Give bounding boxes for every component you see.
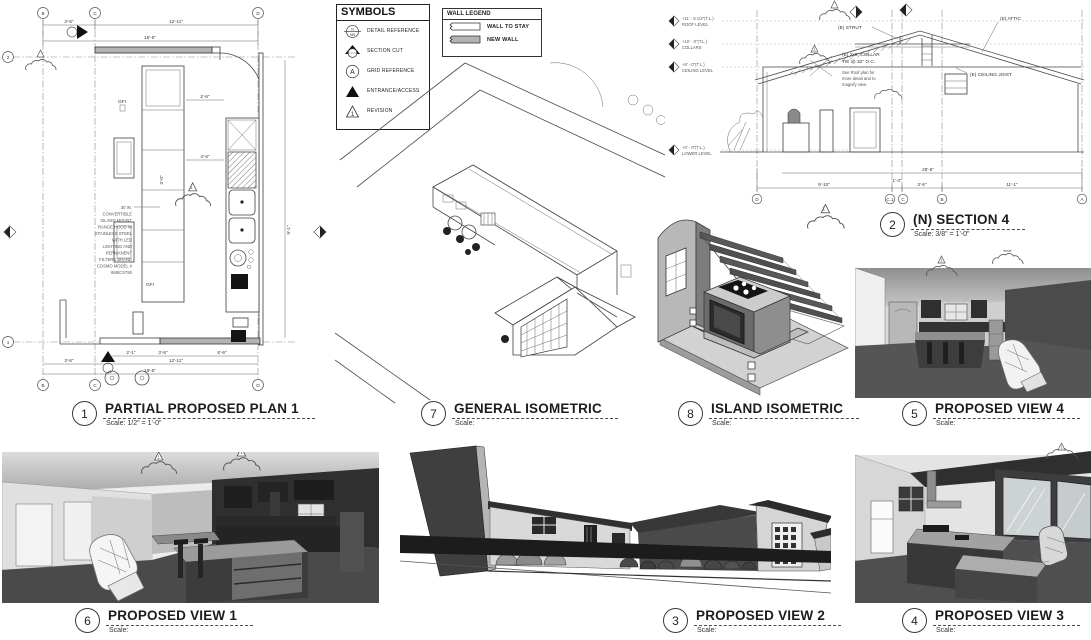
svg-text:2: 2 bbox=[7, 55, 10, 60]
view-number-bubble: 4 bbox=[902, 608, 927, 633]
symbols-legend-title: SYMBOLS bbox=[337, 5, 429, 21]
view-number-bubble: 2 bbox=[880, 212, 905, 237]
svg-text:B: B bbox=[940, 197, 943, 202]
svg-text:(E) CEILING JOIST: (E) CEILING JOIST bbox=[970, 72, 1012, 78]
view-number-bubble: 5 bbox=[902, 401, 927, 426]
small-window bbox=[612, 533, 625, 544]
svg-text:9'-10": 9'-10" bbox=[818, 182, 830, 187]
svg-text:3'-6": 3'-6" bbox=[917, 182, 927, 187]
svg-text:2'-1": 2'-1" bbox=[126, 350, 136, 355]
view-scale-text: Scale: bbox=[936, 627, 1080, 634]
property-lines bbox=[335, 63, 665, 403]
svg-text:(E) ATTIC: (E) ATTIC bbox=[1000, 16, 1021, 22]
svg-text:12'-11": 12'-11" bbox=[169, 19, 183, 24]
svg-text:B: B bbox=[41, 11, 44, 16]
svg-text:3'-6": 3'-6" bbox=[64, 19, 74, 24]
view-number-bubble: 7 bbox=[421, 401, 446, 426]
svg-text:ROOF LEVEL: ROOF LEVEL bbox=[682, 22, 709, 27]
svg-text:28'-6": 28'-6" bbox=[922, 167, 934, 172]
svg-text:3'-6": 3'-6" bbox=[158, 350, 168, 355]
svg-text:11'-1": 11'-1" bbox=[1006, 182, 1018, 187]
svg-text:CONVERTIBLE: CONVERTIBLE bbox=[103, 212, 133, 217]
wall-legend-label: NEW WALL bbox=[487, 37, 519, 43]
view-title-text: PARTIAL PROPOSED PLAN 1 bbox=[103, 401, 315, 419]
svg-text:B: B bbox=[41, 383, 44, 388]
title-proposed-view-3: 4 PROPOSED VIEW 3 Scale: bbox=[902, 608, 1080, 634]
view-scale-text: Scale: 1/2" = 1'-0" bbox=[106, 420, 315, 427]
kitchen-back bbox=[915, 300, 1005, 368]
wall-legend-row-stay: WALL TO STAY bbox=[443, 20, 541, 33]
level-marker-right bbox=[314, 226, 326, 238]
garage-gable bbox=[495, 277, 635, 357]
svg-text:(E) 2x6" COLLAR: (E) 2x6" COLLAR bbox=[842, 52, 880, 58]
svg-text:magnify view: magnify view bbox=[842, 82, 867, 87]
view-scale-text: Scale: bbox=[697, 627, 841, 634]
svg-text:668ICS750: 668ICS750 bbox=[111, 270, 133, 275]
svg-text:1: 1 bbox=[157, 454, 160, 460]
svg-text:C.1: C.1 bbox=[886, 197, 894, 202]
svg-text:3'-6": 3'-6" bbox=[64, 358, 74, 363]
svg-text:1: 1 bbox=[240, 452, 243, 456]
svg-text:STAINLESS STEEL: STAINLESS STEEL bbox=[95, 231, 133, 236]
svg-text:CEILING LEVEL: CEILING LEVEL bbox=[682, 68, 714, 73]
view-title-text: GENERAL ISOMETRIC bbox=[452, 401, 618, 419]
view-scale-text: Scale: bbox=[455, 420, 618, 427]
svg-text:LOWER LEVEL: LOWER LEVEL bbox=[682, 151, 712, 156]
view-title-text: PROPOSED VIEW 1 bbox=[106, 608, 253, 626]
view-scale-text: Scale: bbox=[936, 420, 1080, 427]
svg-text:COLLARS: COLLARS bbox=[682, 45, 702, 50]
title-general-isometric: 7 GENERAL ISOMETRIC Scale: bbox=[421, 401, 618, 427]
view-scale-text: Scale: 3/8" = 1'-0" bbox=[914, 231, 1025, 238]
view-title-text: PROPOSED VIEW 2 bbox=[694, 608, 841, 626]
wall-legend-label: WALL TO STAY bbox=[487, 24, 529, 30]
gfi-label-2: GFI bbox=[146, 282, 154, 288]
legend-row-detail-reference: N NN DETAIL REFERENCE bbox=[337, 21, 429, 41]
view-title-text: PROPOSED VIEW 3 bbox=[933, 608, 1080, 626]
title-proposed-view-4: 5 PROPOSED VIEW 4 Scale: bbox=[902, 401, 1080, 427]
svg-text:N: N bbox=[351, 27, 354, 31]
gfi-label-1: GFI bbox=[118, 99, 126, 105]
title-partial-proposed-plan: 1 PARTIAL PROPOSED PLAN 1 Scale: 1/2" = … bbox=[72, 401, 315, 427]
svg-text:COSMO MODEL #: COSMO MODEL # bbox=[97, 264, 133, 269]
legend-label: SECTION CUT bbox=[367, 48, 403, 54]
view-scale-text: Scale: bbox=[712, 420, 859, 427]
revision-cloud-view4-2 bbox=[993, 250, 1023, 264]
kitchen-window bbox=[899, 487, 923, 511]
partial-proposed-plan-drawing: 3'-6" 12'-11" 16'-5" B C D B C D 2 1 bbox=[0, 0, 332, 398]
revision-cloud-section-2 bbox=[875, 89, 902, 99]
title-section-4: 2 (N) SECTION 4 Scale: 3/8" = 1'-0" bbox=[880, 212, 1025, 238]
svg-text:+11' - 8 1/2"(T.L.): +11' - 8 1/2"(T.L.) bbox=[682, 16, 714, 21]
svg-text:4'-6": 4'-6" bbox=[200, 154, 210, 159]
legend-label: DETAIL REFERENCE bbox=[367, 28, 419, 34]
architectural-sheet: 3'-6" 12'-11" 16'-5" B C D B C D 2 1 bbox=[0, 0, 1091, 640]
title-proposed-view-2: 3 PROPOSED VIEW 2 Scale: bbox=[663, 608, 841, 634]
revision-cloud-section-1: 1 bbox=[800, 45, 830, 64]
general-isometric-drawing bbox=[335, 55, 665, 405]
svg-text:+10' - 0"(T.L.): +10' - 0"(T.L.) bbox=[682, 39, 708, 44]
view-title-text: PROPOSED VIEW 4 bbox=[933, 401, 1080, 419]
svg-text:1: 1 bbox=[822, 207, 825, 213]
door-right bbox=[64, 502, 92, 560]
revision-cloud-section-top bbox=[820, 1, 850, 20]
proposed-view-2-render bbox=[400, 443, 831, 601]
svg-text:WITH LED: WITH LED bbox=[112, 238, 132, 243]
svg-text:16'-5": 16'-5" bbox=[144, 35, 156, 40]
svg-text:(E) STRUT: (E) STRUT bbox=[838, 25, 862, 31]
revision-cloud-island: 1 bbox=[808, 204, 844, 228]
revision-cloud-plan-1 bbox=[26, 50, 56, 70]
wall-legend-title: WALL LEGEND bbox=[443, 9, 541, 20]
svg-text:30 IN.: 30 IN. bbox=[121, 205, 132, 210]
fridge bbox=[871, 501, 893, 553]
title-proposed-view-1: 6 PROPOSED VIEW 1 Scale: bbox=[75, 608, 253, 634]
view-title-text: (N) SECTION 4 bbox=[911, 212, 1025, 230]
proposed-view-3-render: 1 bbox=[855, 443, 1091, 603]
svg-text:9'-1": 9'-1" bbox=[286, 225, 291, 235]
svg-text:TIE @ 32" O.C.: TIE @ 32" O.C. bbox=[842, 59, 875, 65]
view-number-bubble: 1 bbox=[72, 401, 97, 426]
door-left bbox=[16, 504, 52, 566]
svg-text:ISLAND MOUNT: ISLAND MOUNT bbox=[100, 218, 132, 223]
svg-text:8'-6": 8'-6" bbox=[217, 350, 227, 355]
svg-text:1: 1 bbox=[7, 340, 10, 345]
detail-reference-icon: N NN bbox=[344, 23, 361, 40]
new-wall-swatch bbox=[449, 35, 481, 44]
proposed-view-4-render: 1 bbox=[855, 250, 1091, 398]
svg-text:+8' - 0"(T.L.): +8' - 0"(T.L.) bbox=[682, 62, 705, 67]
svg-text:12'-11": 12'-11" bbox=[169, 358, 183, 363]
svg-text:16'-5": 16'-5" bbox=[144, 368, 156, 373]
svg-text:FILTERS BRAND: FILTERS BRAND bbox=[99, 257, 132, 262]
svg-text:+0' - 0"(T.L.): +0' - 0"(T.L.) bbox=[682, 145, 705, 150]
svg-text:2'-6": 2'-6" bbox=[200, 94, 210, 99]
foreground-wedge bbox=[410, 446, 496, 576]
view-number-bubble: 8 bbox=[678, 401, 703, 426]
plan-appliance-counter bbox=[226, 118, 259, 342]
view-number-bubble: 3 bbox=[663, 608, 688, 633]
svg-text:LIGHTING AND: LIGHTING AND bbox=[102, 244, 132, 249]
view-scale-text: Scale: bbox=[109, 627, 253, 634]
title-island-isometric: 8 ISLAND ISOMETRIC Scale: bbox=[678, 401, 859, 427]
island-isometric-drawing: 1 bbox=[648, 196, 854, 408]
section-cut-marker-top bbox=[67, 25, 88, 39]
section-grid-lines bbox=[757, 10, 1082, 193]
main-roof bbox=[433, 165, 617, 293]
section-cut-marker-bottom bbox=[101, 351, 115, 373]
svg-text:3'-0": 3'-0" bbox=[159, 175, 164, 185]
view-title-text: ISLAND ISOMETRIC bbox=[709, 401, 859, 419]
proposed-view-1-render: 1 1 bbox=[2, 452, 379, 603]
view-number-bubble: 6 bbox=[75, 608, 100, 633]
level-marker-left bbox=[4, 226, 16, 238]
svg-text:RANGE HOOD IN: RANGE HOOD IN bbox=[98, 225, 132, 230]
svg-text:1'-3": 1'-3" bbox=[892, 178, 902, 183]
plan-bottom-dimensions: 2'-1" 3'-6" 8'-6" 3'-6" 12'-11" 16'-5" bbox=[43, 350, 258, 374]
wall-legend-row-new: NEW WALL bbox=[443, 33, 541, 46]
svg-text:NN: NN bbox=[350, 33, 356, 37]
wall-legend: WALL LEGEND WALL TO STAY NEW WALL bbox=[442, 8, 542, 57]
svg-text:See Roof plan for: See Roof plan for bbox=[842, 70, 875, 75]
wall-to-stay-swatch bbox=[449, 22, 481, 31]
svg-text:more detail and to: more detail and to bbox=[842, 76, 876, 81]
svg-text:PERMANENT: PERMANENT bbox=[106, 251, 133, 256]
svg-text:1: 1 bbox=[190, 185, 193, 191]
